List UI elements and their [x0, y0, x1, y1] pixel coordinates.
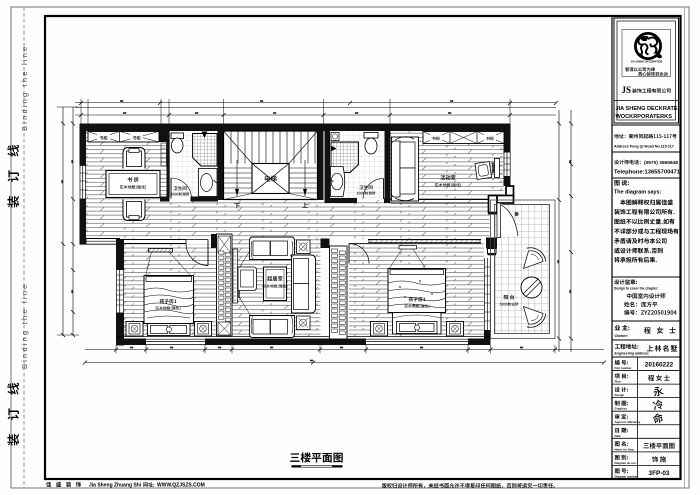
svg-text:Address Feng Qi Road No.115-11: Address Feng Qi Road No.115-117	[614, 145, 674, 149]
svg-text:Jia Sheng Zhuang Shi: Jia Sheng Zhuang Shi	[89, 483, 142, 489]
svg-text:Binding the line: Binding the line	[20, 45, 29, 132]
svg-text:Date: Date	[615, 434, 622, 438]
svg-text:Telephone:: Telephone:	[614, 170, 645, 176]
svg-text:JIA SHENG DECORATION: JIA SHENG DECORATION	[631, 60, 663, 64]
svg-text:WOCKRPORATERKS: WOCKRPORATERKS	[616, 114, 673, 120]
svg-text:Diagram number: Diagram number	[615, 474, 639, 478]
svg-text:The diagram says:: The diagram says:	[614, 190, 662, 196]
svg-text:Binding the line: Binding the line	[20, 283, 29, 370]
svg-text:Design: Design	[615, 393, 625, 397]
svg-text:(0570) 3565948: (0570) 3565948	[644, 160, 678, 166]
svg-text:Part number: Part number	[615, 366, 633, 370]
svg-text:JIA SHENG DECKRATE: JIA SHENG DECKRATE	[616, 106, 678, 112]
svg-text:Owner:: Owner:	[615, 333, 629, 338]
svg-text:13655700471: 13655700471	[645, 170, 681, 176]
svg-text:Notes for flow: Notes for flow	[615, 447, 635, 451]
svg-text:20160222: 20160222	[645, 362, 674, 369]
svg-text:Engineering address:: Engineering address:	[615, 352, 650, 356]
svg-text:Diagram do not: Diagram do not	[615, 461, 636, 465]
svg-text:3FP-03: 3FP-03	[649, 470, 670, 477]
svg-text:Approve efficiency: Approve efficiency	[615, 420, 641, 424]
svg-text:JS: JS	[622, 85, 632, 95]
svg-text:Graphics: Graphics	[615, 407, 628, 411]
svg-text:Design to cover the chapter:: Design to cover the chapter:	[614, 287, 659, 291]
svg-text:Plan: Plan	[615, 380, 621, 384]
svg-text:WWW.QZJSZS.COM: WWW.QZJSZS.COM	[157, 483, 205, 489]
